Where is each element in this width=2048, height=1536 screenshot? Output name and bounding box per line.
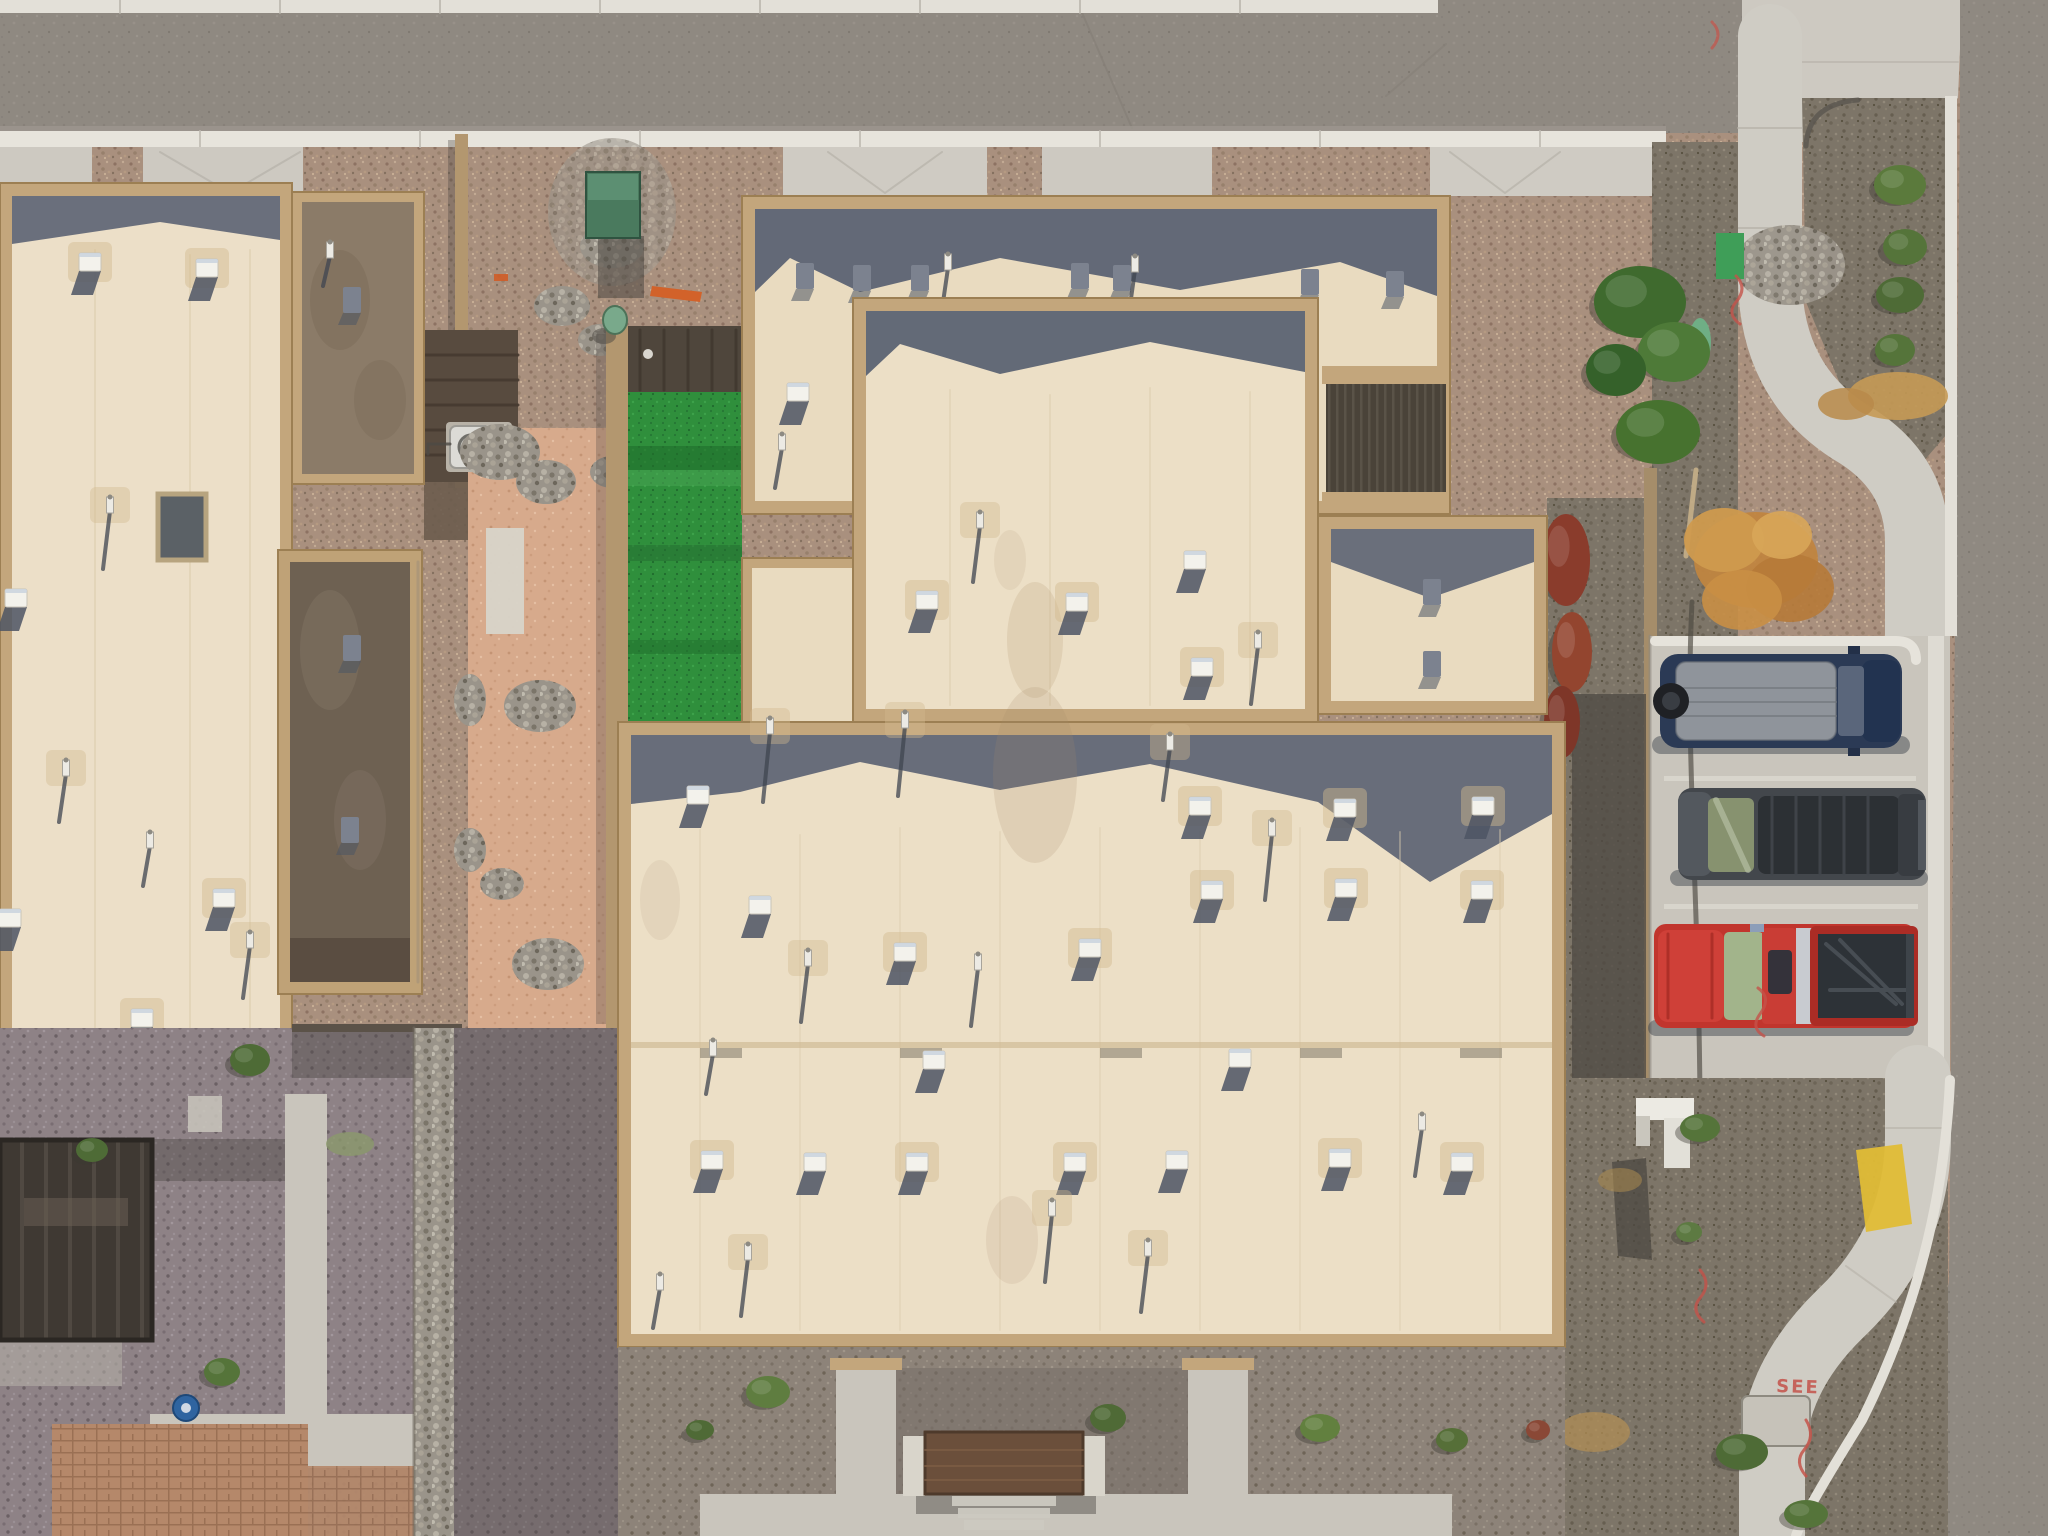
vent-box (853, 265, 871, 291)
rock-pile (480, 868, 524, 900)
gap-wall-lower-shadow (596, 334, 606, 1024)
vent-box (343, 287, 361, 313)
bush-highlight (1881, 170, 1904, 188)
roof-stain (986, 1196, 1038, 1284)
pipe-cap (658, 1272, 663, 1277)
vent-cap-edge (1334, 799, 1356, 803)
pillar-cap (830, 1358, 902, 1370)
pipe-cap (1420, 1112, 1425, 1117)
westgap-shadow (454, 1028, 618, 1536)
vent-cap-edge (916, 591, 938, 595)
turf-shade-band (628, 545, 742, 561)
bush-highlight (1685, 1118, 1703, 1131)
vent-cap-edge (1066, 593, 1088, 597)
left-building-roof (12, 196, 280, 1108)
rock-pile (454, 828, 486, 872)
pipe-cap (780, 432, 785, 437)
orange-tree-canopy (1702, 570, 1782, 630)
vent-cap-edge (1201, 881, 1223, 885)
vent-cap-edge (701, 1151, 723, 1155)
vent-box (1423, 651, 1441, 677)
bush-highlight (1790, 1504, 1810, 1517)
vent-cap-edge (1335, 879, 1357, 883)
pipe-cap (903, 710, 908, 715)
pipe-cap (1133, 254, 1138, 259)
van-windshield (1838, 666, 1864, 736)
bush-highlight (1880, 338, 1898, 352)
vent-cap-edge (1184, 551, 1206, 555)
bush-highlight (1889, 234, 1909, 250)
suv-hood (1678, 792, 1712, 876)
suv-rear-glass (1918, 800, 1926, 870)
pipe-cap (148, 830, 153, 835)
vent-cap-edge (906, 1153, 928, 1157)
pipe-cap (1168, 732, 1173, 737)
bush-highlight (1627, 408, 1665, 437)
pipe-cap (711, 1038, 716, 1043)
patio-trellis (1326, 384, 1446, 506)
courtyard-grass (326, 1132, 374, 1156)
roof-stain (993, 687, 1077, 863)
top-sidewalk-strip (0, 0, 1438, 13)
ramada-roof (925, 1432, 1083, 1494)
vent-cap-edge (687, 786, 709, 790)
blue-bucket-lid (181, 1403, 191, 1413)
turf-light-band (628, 470, 742, 486)
pipe-cap (108, 495, 113, 500)
pipe-cap (768, 716, 773, 721)
vent-cap-edge (787, 383, 809, 387)
pergola-bench (24, 1198, 128, 1226)
vent-box (341, 817, 359, 843)
van-mirror (1848, 748, 1860, 756)
road-top (0, 0, 1742, 133)
pipe-cap (806, 948, 811, 953)
van-front (1862, 660, 1900, 742)
scene-layers: SEE2 (0, 0, 2048, 1536)
pipe-cap (1146, 1238, 1151, 1243)
roof-stain (1007, 582, 1063, 698)
pipe-cap (976, 952, 981, 957)
rock-pile (454, 674, 486, 726)
vent-box (1301, 269, 1319, 295)
side-walk-pad (486, 528, 524, 634)
roof-stain (994, 530, 1026, 590)
mailbox-side (1636, 1116, 1650, 1146)
turf-shade-band (628, 446, 742, 470)
vent-cap-edge (79, 253, 101, 257)
rock-drainage-strip (414, 1028, 454, 1536)
bush-highlight (1723, 1439, 1746, 1455)
bush-highlight (1882, 282, 1904, 298)
rock-pile (534, 286, 590, 326)
bush-highlight (80, 1141, 94, 1152)
bush-highlight (1679, 1225, 1691, 1234)
truck-cab-rear-panel (1796, 928, 1812, 1024)
turf-shade-band (628, 640, 742, 654)
rock-pile (1735, 225, 1845, 305)
aerial-photo-stage: SEE2 (0, 0, 2048, 1536)
courtyard-path-vertical (285, 1094, 327, 1426)
vent-box (1113, 265, 1131, 291)
bush-highlight (1606, 275, 1647, 307)
utility-marker-green (1716, 233, 1744, 279)
vent-box (1071, 263, 1089, 289)
vent-box (1423, 579, 1441, 605)
driveway-slab (1042, 147, 1212, 196)
courtyard-pad (188, 1096, 222, 1132)
vent-cap-edge (1471, 881, 1493, 885)
ramada-wall (903, 1436, 925, 1496)
brown-roof-bottom-shadow (290, 938, 410, 982)
suv-roof (1758, 796, 1900, 874)
pipe-cap (746, 1242, 751, 1247)
vent-cap-edge (923, 1051, 945, 1055)
vent-cap-edge (1229, 1049, 1251, 1053)
rock-pile (512, 938, 584, 990)
truck-sunroof (1768, 950, 1792, 994)
stall-line (1664, 776, 1916, 781)
wall-shadow (1572, 694, 1646, 1082)
truck-glass-glint (1750, 924, 1764, 932)
pipe-cap (64, 758, 69, 763)
vent-cap-edge (749, 896, 771, 900)
parking-curb-right (1928, 636, 1944, 1078)
bush-highlight (1529, 1423, 1540, 1432)
transformer-lid (588, 174, 638, 200)
vent-cap-edge (131, 1009, 153, 1013)
vent-cap-edge (5, 589, 27, 593)
bush-highlight (1095, 1408, 1111, 1421)
truck-windshield (1724, 932, 1764, 1020)
vent-cap-edge (1191, 658, 1213, 662)
turf-fence (628, 326, 742, 392)
vent-box (911, 265, 929, 291)
brick-patio (52, 1424, 308, 1536)
white-dot (643, 349, 653, 359)
bush-highlight (1647, 330, 1679, 357)
vent-box (796, 263, 814, 289)
gutter-line (0, 126, 1666, 131)
dry-grass (1558, 1412, 1630, 1452)
transformer-shadow (598, 236, 644, 298)
pipe-cap (248, 930, 253, 935)
vent-cap-edge (213, 889, 235, 893)
pillar-cap (1182, 1358, 1254, 1370)
vent-cap-edge (1329, 1149, 1351, 1153)
vent-cap-edge (1166, 1151, 1188, 1155)
vent-box (343, 635, 361, 661)
rock-pile (516, 460, 576, 504)
vent-cap-edge (1064, 1153, 1086, 1157)
bush-highlight (1548, 526, 1570, 567)
aerial-scene: SEE2 (0, 0, 2048, 1536)
bush-highlight (209, 1362, 225, 1375)
green-pipe (603, 306, 627, 334)
orange-tree-canopy (1752, 511, 1812, 559)
spray-text-see: SEE (1776, 1376, 1820, 1399)
driveway-slab (783, 147, 987, 196)
bush-highlight (752, 1380, 772, 1394)
bush-highlight (1594, 351, 1621, 374)
driveway-slab (1430, 147, 1666, 196)
roof-skylight (158, 494, 206, 560)
vent-cap-edge (1189, 797, 1211, 801)
pipe-cap (328, 240, 333, 245)
island-dry-grass (1818, 388, 1874, 420)
pipe-cap (1270, 818, 1275, 823)
trellis-parapet-bottom (1322, 492, 1448, 512)
vent-cap-edge (1472, 797, 1494, 801)
vent-cap-edge (1079, 939, 1101, 943)
brown-roof-mottle (354, 360, 406, 440)
curb-right-upper (1945, 96, 1957, 636)
bush-highlight (1305, 1418, 1323, 1431)
pipe-cap (1256, 630, 1261, 635)
orange-tree-canopy (1684, 508, 1764, 572)
pipe-cap (978, 510, 983, 515)
bush-highlight (235, 1048, 253, 1062)
vent-cap-edge (0, 909, 21, 913)
trellis-parapet (1322, 366, 1448, 384)
center-west-step-roof (752, 568, 855, 728)
vent-cap-edge (196, 259, 218, 263)
dry-grass (1598, 1168, 1642, 1192)
curb-bottom (0, 131, 1666, 147)
stall-line (1664, 904, 1918, 909)
vent-box (1386, 271, 1404, 297)
orange-marker-small (494, 274, 508, 281)
roof-step-line (631, 1042, 1552, 1048)
truck-tailgate (1906, 934, 1914, 1018)
bush-highlight (1440, 1431, 1454, 1442)
vent-cap-edge (894, 943, 916, 947)
van-spare-hub (1662, 692, 1680, 710)
roof-stain (640, 860, 680, 940)
pipe-cap (946, 252, 951, 257)
ramada-steps (952, 1496, 1056, 1530)
bush-highlight (690, 1423, 703, 1432)
yellow-curb-paint (1856, 1144, 1912, 1232)
rock-pile (504, 680, 576, 732)
vent-cap-edge (804, 1153, 826, 1157)
van-mirror (1848, 646, 1860, 654)
ramada-wall (1083, 1436, 1105, 1496)
vent-cap-edge (1451, 1153, 1473, 1157)
bush-highlight (1557, 622, 1575, 658)
pipe-cap (1050, 1198, 1055, 1203)
